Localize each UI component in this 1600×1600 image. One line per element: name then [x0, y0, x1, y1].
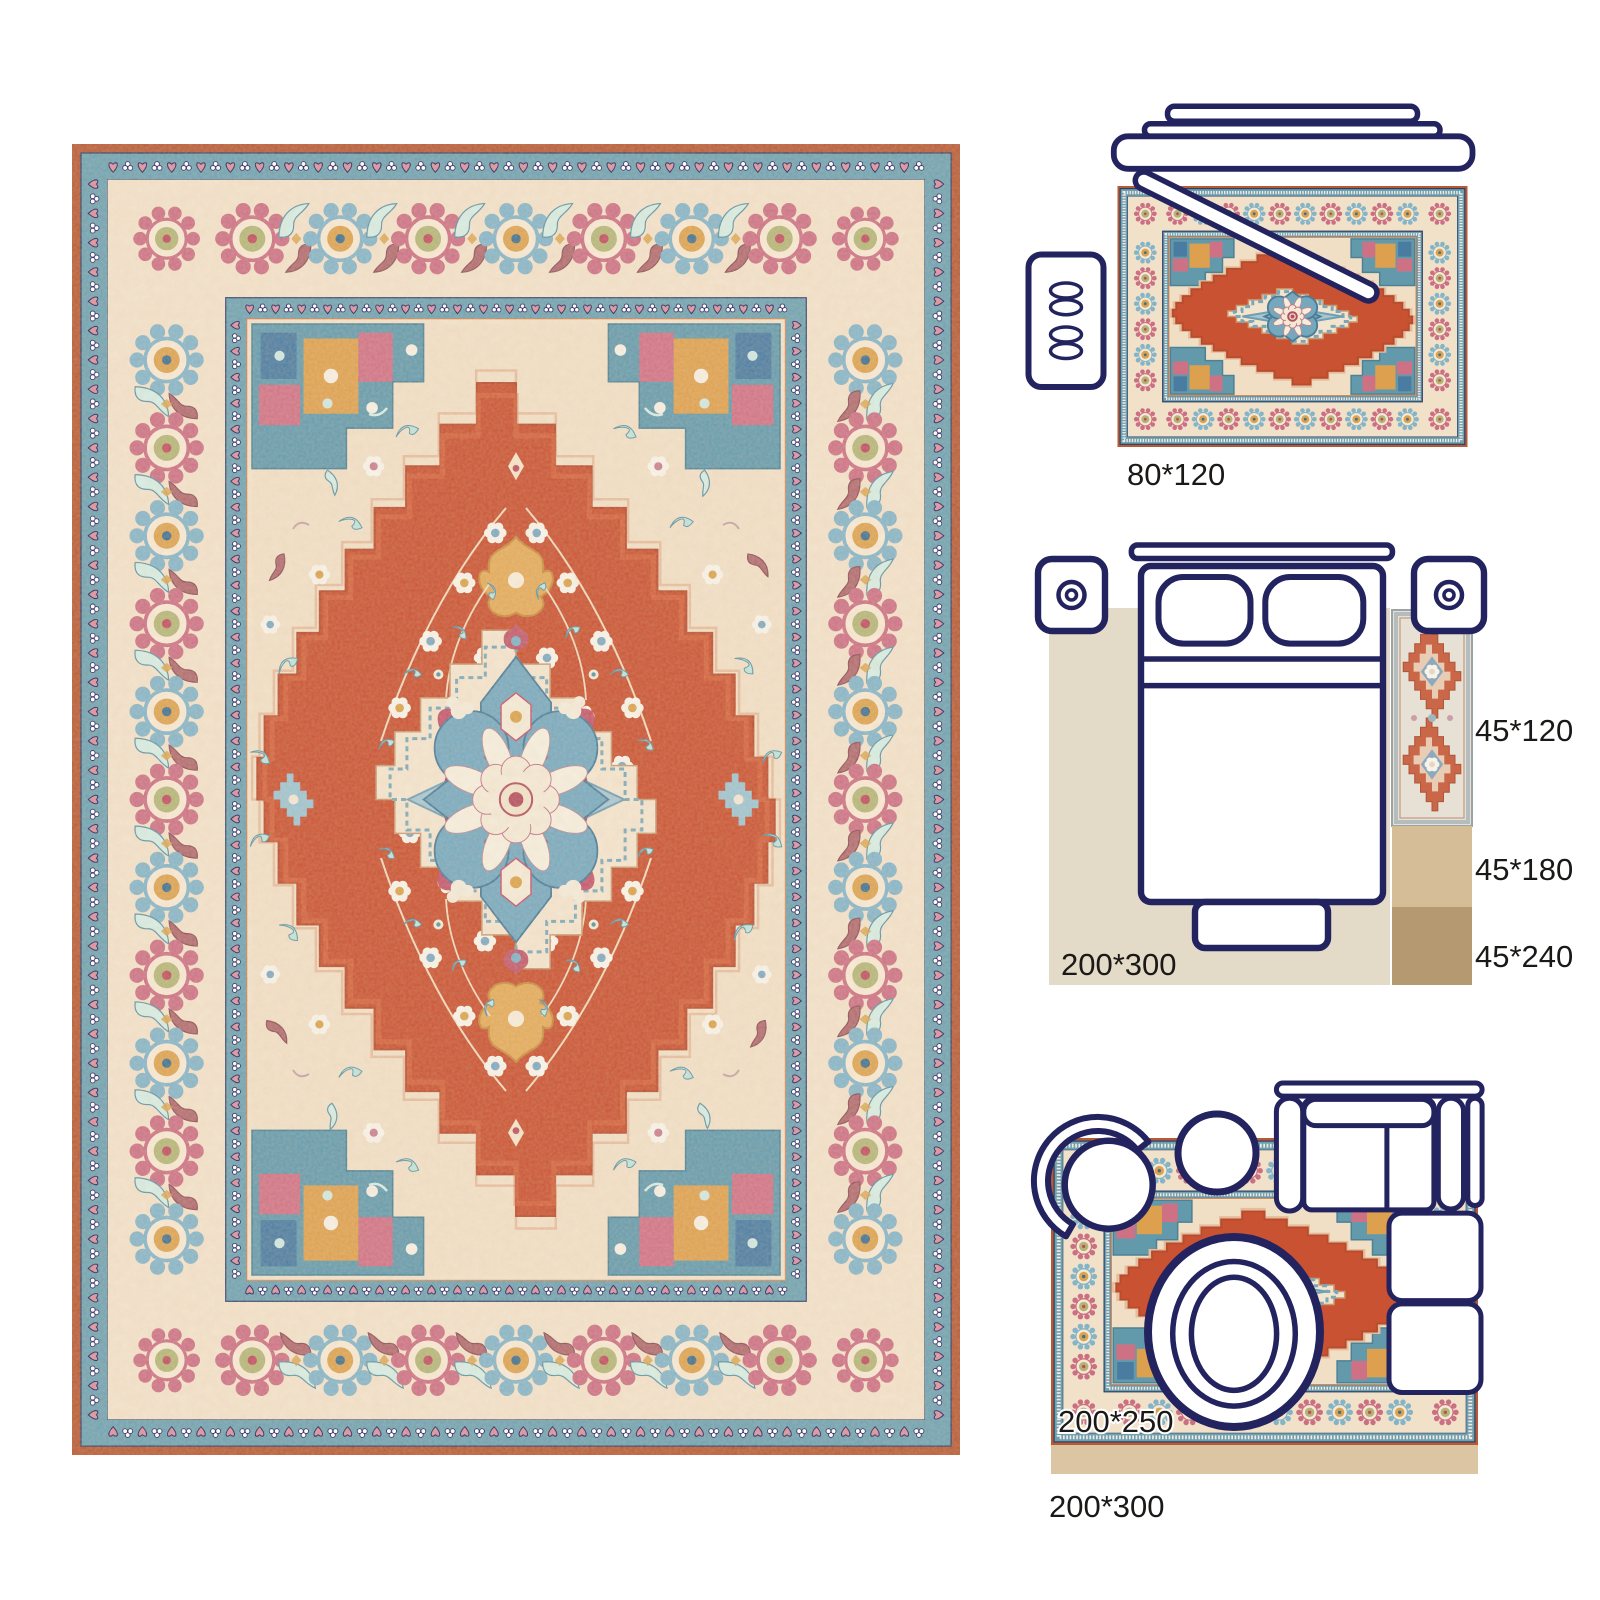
svg-text:45*120: 45*120 [1475, 713, 1573, 748]
svg-text:200*300: 200*300 [1061, 947, 1177, 982]
svg-text:80*120: 80*120 [1127, 457, 1225, 492]
svg-text:45*180: 45*180 [1475, 852, 1573, 887]
svg-text:45*240: 45*240 [1475, 939, 1573, 974]
svg-text:200*250: 200*250 [1058, 1404, 1174, 1439]
svg-text:200*300: 200*300 [1049, 1489, 1165, 1524]
